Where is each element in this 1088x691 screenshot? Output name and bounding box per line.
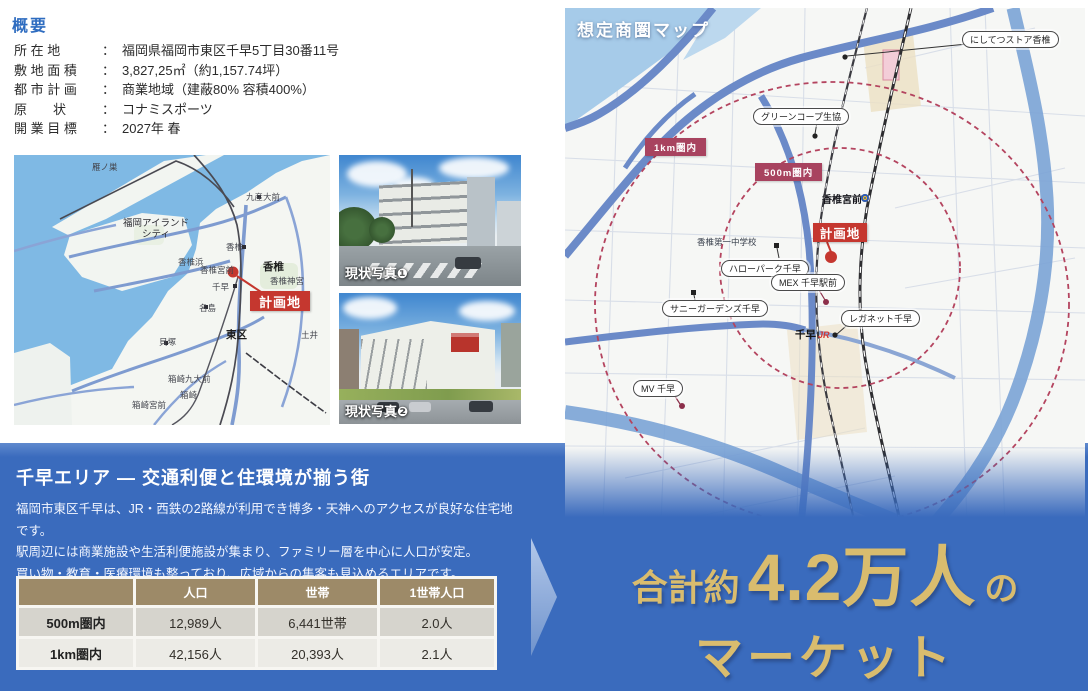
plan-site-label: 計画地 [813, 223, 867, 242]
table-row-1km: 1km圏内 42,156人 20,393人 2.1人 [19, 639, 494, 667]
map-label: にしてつストア香椎 [962, 31, 1059, 48]
map-label: 箱崎宮前 [132, 401, 166, 411]
map-label: 箱崎九大前 [168, 375, 211, 385]
nishitetsu-station-icon [861, 194, 869, 202]
cloud-shape [439, 157, 509, 179]
table-cell: 6,441世帯 [258, 608, 377, 636]
map-label: 土井 [301, 331, 318, 341]
table-cell: 2.1人 [380, 639, 494, 667]
access-map-labels: 雁ノ巣九産大前福岡アイランド シティ香椎香椎浜香椎宮前香椎香椎神宮千早名島東区土… [14, 155, 330, 425]
jr-chihaya-station-label: 千早 JR [795, 327, 830, 342]
photo-car [409, 402, 431, 412]
spec-row-zoning: 都 市 計 画 ： 商業地域（建蔽80% 容積400%） [14, 79, 534, 99]
spec-label: 敷 地 面 積 [14, 60, 102, 79]
table-row-label: 500m圏内 [19, 608, 133, 636]
photo-building [501, 323, 521, 387]
table-header-cell [19, 579, 133, 605]
map-label: MEX 千早駅前 [771, 274, 845, 291]
spec-colon: ： [102, 118, 122, 137]
utility-pole [411, 169, 413, 227]
area-section-title: 千早エリア ― 交通利便と住環境が揃う街 [16, 464, 370, 490]
map-label: 東区 [226, 329, 247, 341]
map-label: 香椎 [226, 243, 243, 253]
area-section-body: 福岡市東区千早は、JR・西鉄の2路線が利用でき博多・天神へのアクセスが良好な住宅… [16, 499, 521, 585]
table-row-500m: 500m圏内 12,989人 6,441世帯 2.0人 [19, 608, 494, 636]
access-location-map: 雁ノ巣九産大前福岡アイランド シティ香椎香椎浜香椎宮前香椎香椎神宮千早名島東区土… [14, 155, 330, 425]
spec-row-site-area: 敷 地 面 積 ： 3,827,25㎡（約1,157.74坪） [14, 60, 534, 80]
site-photo-1: 現状写真❶ [339, 155, 521, 286]
spec-label: 都 市 計 画 [14, 79, 102, 98]
map-label: 1km圏内 [645, 138, 706, 156]
table-header-row: 人口 世帯 1世帯人口 [19, 579, 494, 605]
spec-value: コナミスポーツ [122, 99, 213, 118]
photo-car [469, 401, 493, 412]
spec-colon: ： [102, 79, 122, 98]
photo-building [339, 329, 359, 389]
table-cell: 42,156人 [136, 639, 255, 667]
photo-building [497, 201, 521, 249]
callout-prefix: 合計約 [632, 559, 740, 611]
site-photo-2: 現状写真❷ [339, 293, 521, 424]
overview-heading: 概要 [12, 12, 48, 36]
map-label: レガネット千早 [841, 310, 920, 327]
spec-colon: ： [102, 40, 122, 59]
map-label: 千早 [212, 283, 229, 293]
spec-row-address: 所 在 地 ： 福岡県福岡市東区千早5丁目30番11号 [14, 40, 534, 60]
map-label: グリーンコープ生協 [753, 108, 849, 125]
table-cell: 2.0人 [380, 608, 494, 636]
map-label: 香椎 [263, 261, 284, 273]
spec-label: 原 状 [14, 99, 102, 118]
map-label: 香椎宮前 [822, 191, 862, 206]
table-cell: 20,393人 [258, 639, 377, 667]
photo-caption: 現状写真❷ [345, 401, 408, 420]
cloud-shape [459, 301, 515, 321]
market-callout: 合計約 4.2万人 の マーケット [575, 524, 1075, 688]
jr-logo: JR [818, 330, 830, 340]
callout-particle: の [984, 561, 1018, 610]
spec-row-current-state: 原 状 ： コナミスポーツ [14, 99, 534, 119]
callout-line2: マーケット [575, 618, 1075, 688]
map-label: 香椎宮前 [200, 266, 234, 276]
map-label: サニーガーデンズ千早 [662, 300, 768, 317]
brochure-page: { "overview": { "heading": "概要", "colon"… [0, 0, 1088, 691]
callout-number: 4.2万人 [748, 524, 977, 620]
map-label: 500m圏内 [755, 163, 822, 181]
map-label: 香椎神宮 [270, 277, 304, 287]
building-windows [361, 339, 427, 395]
map-label: 貝塚 [159, 338, 176, 348]
store-sign [451, 333, 479, 352]
table-row-label: 1km圏内 [19, 639, 133, 667]
photo-building [379, 181, 473, 248]
spec-value: 福岡県福岡市東区千早5丁目30番11号 [122, 40, 339, 59]
spec-label: 所 在 地 [14, 40, 102, 59]
spec-colon: ： [102, 60, 122, 79]
map-label: 福岡アイランド シティ [110, 219, 202, 241]
spec-row-opening-target: 開 業 目 標 ： 2027年 春 [14, 118, 534, 138]
photo-caption: 現状写真❶ [345, 263, 408, 282]
cloud-shape [343, 297, 397, 319]
map-fade-overlay [565, 447, 1085, 525]
map-label: 雁ノ巣 [92, 163, 118, 173]
photo-tree [369, 217, 395, 243]
spec-value: 3,827,25㎡（約1,157.74坪） [122, 60, 288, 79]
table-cell: 12,989人 [136, 608, 255, 636]
spec-label: 開 業 目 標 [14, 118, 102, 137]
map-label: 香椎第一中学校 [697, 236, 757, 248]
table-header-cell: 世帯 [258, 579, 377, 605]
photo-car [455, 257, 481, 269]
overview-spec-list: 所 在 地 ： 福岡県福岡市東区千早5丁目30番11号 敷 地 面 積 ： 3,… [14, 40, 534, 138]
callout-line1: 合計約 4.2万人 の [575, 524, 1075, 620]
spec-colon: ： [102, 99, 122, 118]
body-line: 福岡市東区千早は、JR・西鉄の2路線が利用でき博多・天神へのアクセスが良好な住宅… [16, 499, 521, 542]
plan-site-label: 計画地 [250, 291, 310, 311]
map-label: MV 千早 [633, 380, 683, 397]
population-table: 人口 世帯 1世帯人口 500m圏内 12,989人 6,441世帯 2.0人 … [16, 576, 497, 670]
map-label: 九産大前 [246, 193, 280, 203]
photo-building [467, 177, 495, 249]
spec-value: 商業地域（建蔽80% 容積400%） [122, 79, 315, 98]
station-name: 千早 [795, 327, 816, 342]
grass-strip [339, 389, 521, 400]
map-label: 名島 [199, 304, 216, 314]
table-header-cell: 人口 [136, 579, 255, 605]
body-line: 駅周辺には商業施設や生活利便施設が集まり、ファミリー層を中心に人口が安定。 [16, 542, 521, 564]
trade-area-map: 想定商圏マップ にしてつストア香椎グリーンコープ生協1km圏内500m圏内香椎宮… [565, 8, 1085, 525]
spec-value: 2027年 春 [122, 118, 181, 137]
map-label: 箱崎 [180, 391, 197, 401]
table-header-cell: 1世帯人口 [380, 579, 494, 605]
